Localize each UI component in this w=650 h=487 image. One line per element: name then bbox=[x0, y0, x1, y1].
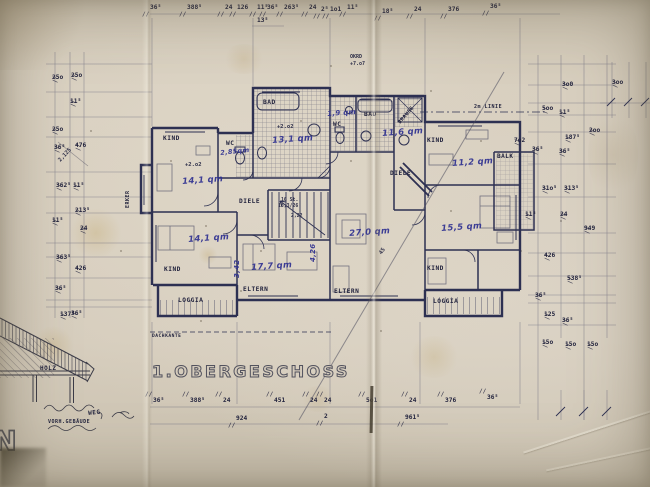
left-fold bbox=[142, 0, 152, 487]
creases-layer bbox=[0, 0, 650, 487]
dark-corner bbox=[0, 448, 46, 487]
wrinkle bbox=[546, 447, 650, 472]
photo-vignette bbox=[0, 0, 650, 487]
fold-tear bbox=[370, 386, 374, 433]
scanned-floor-plan: 1.OBERGESCHOSS N KINDWCBADWCBADBRAUSEKIN… bbox=[0, 0, 650, 487]
center-fold bbox=[366, 0, 382, 487]
wrinkle bbox=[523, 408, 650, 453]
